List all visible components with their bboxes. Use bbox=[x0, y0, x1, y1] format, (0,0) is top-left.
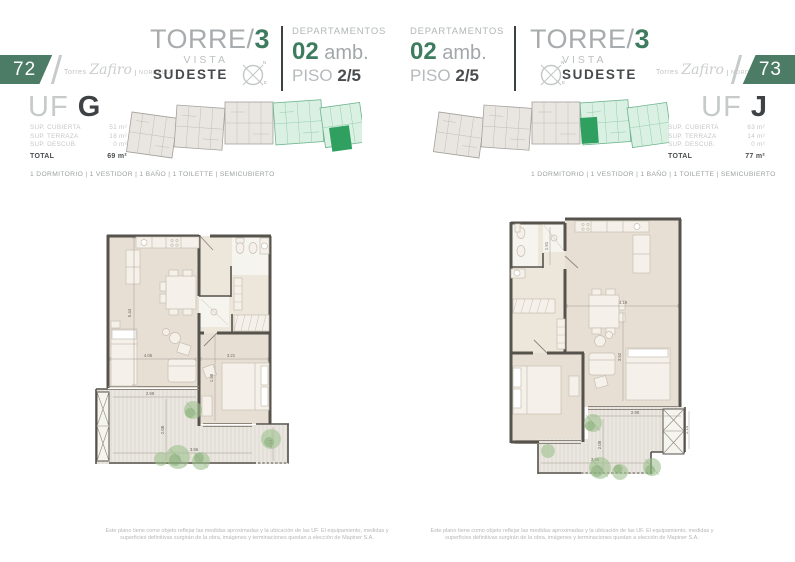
svg-text:1.91: 1.91 bbox=[544, 241, 549, 250]
unit-title-right: UF J bbox=[660, 93, 768, 122]
surface-table-right: SUP. CUBIERTA63 m² SUP. TERRAZA14 m² SUP… bbox=[668, 124, 765, 161]
rooms-count: 02 amb. bbox=[410, 40, 504, 64]
department-label: DEPARTAMENTOS bbox=[410, 27, 504, 37]
tower-name: TORRE/3 bbox=[530, 26, 652, 53]
rooms-count: 02 amb. bbox=[292, 40, 386, 64]
svg-text:2.08: 2.08 bbox=[597, 440, 602, 449]
surface-row: SUP. TERRAZA18 m² bbox=[30, 133, 127, 142]
floor-label: PISO 2/5 bbox=[410, 67, 504, 84]
vista-label: VISTA bbox=[148, 55, 228, 66]
page-number: 73 bbox=[759, 59, 782, 81]
department-block-right: DEPARTAMENTOS 02 amb. PISO 2/5 bbox=[410, 27, 504, 84]
features-line-left: 1 DORMITORIO | 1 VESTIDOR | 1 BAÑO | 1 T… bbox=[30, 171, 275, 178]
svg-text:1.98: 1.98 bbox=[209, 373, 214, 382]
page-number-badge-left: 72 bbox=[0, 55, 58, 84]
brochure-page: 72 Torres Zafiro NORDELTA TORRE/3 VISTA … bbox=[0, 0, 795, 562]
svg-text:4.19: 4.19 bbox=[619, 300, 628, 305]
floor-label: PISO 2/5 bbox=[292, 67, 386, 84]
surface-row: SUP. CUBIERTA51 m² bbox=[30, 124, 127, 133]
disclaimer-right: Este plano tiene como objeto reflejar la… bbox=[424, 528, 720, 542]
orientation-label: SUDESTE bbox=[562, 68, 652, 82]
svg-text:4.06: 4.06 bbox=[144, 353, 153, 358]
department-label: DEPARTAMENTOS bbox=[292, 27, 386, 37]
compass-north-label: N bbox=[561, 60, 564, 65]
disclaimer-left: Este plano tiene como objeto reflejar la… bbox=[99, 528, 395, 542]
svg-text:3.52: 3.52 bbox=[617, 352, 622, 361]
badge-slash-left bbox=[51, 55, 62, 84]
unit-title-left: UF G bbox=[28, 93, 101, 122]
brand-script: Zafiro bbox=[681, 62, 724, 78]
surface-row: SUP. CUBIERTA63 m² bbox=[668, 124, 765, 133]
svg-text:2.98: 2.98 bbox=[146, 391, 155, 396]
features-line-right: 1 DORMITORIO | 1 VESTIDOR | 1 BAÑO | 1 T… bbox=[531, 171, 776, 178]
svg-text:3.21: 3.21 bbox=[227, 353, 236, 358]
tower-name: TORRE/3 bbox=[148, 26, 270, 53]
surface-total-row: TOTAL69 m² bbox=[30, 152, 127, 161]
orientation-label: SUDESTE bbox=[148, 68, 228, 82]
compass-north-label: N bbox=[263, 60, 266, 65]
building-keyplan-left bbox=[126, 82, 362, 170]
keyplan-selected-unit bbox=[329, 125, 352, 152]
svg-text:5.44: 5.44 bbox=[127, 308, 132, 317]
svg-text:3.96: 3.96 bbox=[190, 447, 199, 452]
vista-label: VISTA bbox=[562, 55, 652, 66]
brand-prefix: Torres bbox=[656, 69, 678, 76]
svg-text:2.08: 2.08 bbox=[160, 425, 165, 434]
floorplan-uf-j: 4.19 3.52 1.91 2.98 2.08 3.96 1.14 bbox=[503, 211, 718, 513]
svg-text:1.14: 1.14 bbox=[684, 425, 689, 434]
surface-row: SUP. TERRAZA14 m² bbox=[668, 133, 765, 142]
floorplan-uf-g: 5.44 4.06 3.21 2.98 2.08 3.96 1.14 1.98 bbox=[82, 226, 314, 514]
surface-table-left: SUP. CUBIERTA51 m² SUP. TERRAZA18 m² SUP… bbox=[30, 124, 127, 161]
surface-row: SUP. DESCUB.0 m² bbox=[668, 141, 765, 150]
keyplan-grey-units bbox=[433, 102, 580, 158]
building-keyplan-right bbox=[433, 82, 669, 170]
surface-row: SUP. DESCUB.0 m² bbox=[30, 141, 127, 150]
department-block-left: DEPARTAMENTOS 02 amb. PISO 2/5 bbox=[292, 27, 386, 84]
page-number: 72 bbox=[13, 59, 36, 81]
room-fills bbox=[511, 219, 685, 474]
svg-text:2.98: 2.98 bbox=[631, 410, 640, 415]
surface-total-row: TOTAL77 m² bbox=[668, 152, 765, 161]
brand-prefix: Torres bbox=[64, 69, 86, 76]
keyplan-grey-units bbox=[126, 102, 273, 158]
brand-script: Zafiro bbox=[89, 62, 132, 78]
planter-box bbox=[97, 392, 109, 461]
keyplan-selected-unit bbox=[580, 117, 599, 144]
